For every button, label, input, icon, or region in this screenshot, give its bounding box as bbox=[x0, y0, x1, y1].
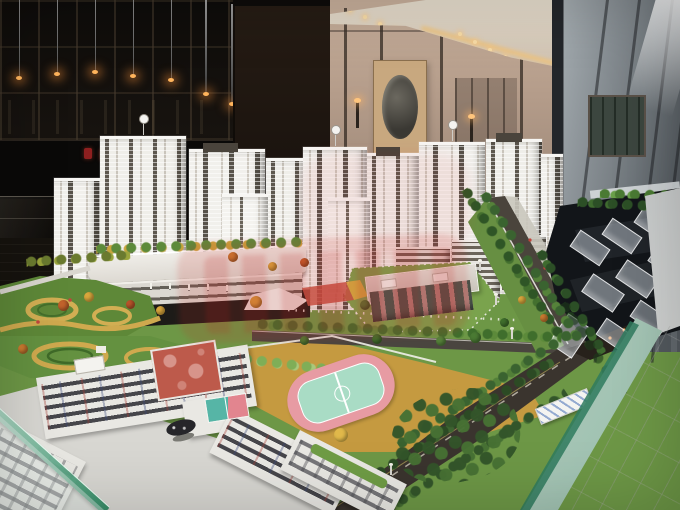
shelf-light bbox=[16, 76, 22, 80]
autumn-tree bbox=[156, 306, 165, 315]
tower-roof-sign-pin bbox=[452, 128, 453, 141]
flag-post bbox=[150, 283, 152, 289]
pendant-light bbox=[19, 0, 20, 76]
wall-sconce bbox=[356, 102, 359, 128]
street-lamp bbox=[511, 330, 513, 339]
autumn-tree bbox=[540, 314, 548, 322]
pendant-light bbox=[205, 0, 207, 92]
green-tree bbox=[436, 336, 446, 346]
tower-roof-sign-pin bbox=[143, 122, 144, 135]
shelf-light bbox=[168, 78, 174, 82]
autumn-tree bbox=[334, 428, 348, 442]
pendant-glow bbox=[203, 92, 209, 96]
downlight bbox=[458, 32, 462, 36]
shelf-light bbox=[92, 70, 98, 74]
round-artwork bbox=[382, 75, 418, 139]
sales-gallery-model-photo bbox=[0, 0, 680, 510]
pendant-light bbox=[57, 0, 58, 72]
pendant-light bbox=[171, 0, 172, 78]
tower-roof-sign-pin bbox=[335, 133, 336, 146]
pendant-light bbox=[133, 0, 134, 74]
rooftop-mechanical bbox=[496, 133, 522, 142]
reflected-door bbox=[588, 95, 646, 157]
shelf-light bbox=[130, 74, 136, 78]
red-watermark-text bbox=[204, 248, 457, 335]
wall-sconce bbox=[470, 118, 473, 144]
pendant-light bbox=[95, 0, 96, 70]
street-lamp bbox=[495, 296, 497, 305]
downlight bbox=[363, 15, 367, 19]
autumn-tree bbox=[84, 292, 94, 302]
flag-post bbox=[169, 283, 171, 289]
street-lamp bbox=[390, 466, 392, 475]
red-feature-wall bbox=[150, 340, 223, 402]
red-can bbox=[84, 148, 92, 159]
green-tree bbox=[500, 318, 509, 327]
autumn-tree bbox=[58, 300, 69, 311]
shelf-light bbox=[54, 72, 60, 76]
rooftop-box bbox=[74, 355, 106, 375]
green-tree bbox=[470, 332, 481, 343]
downlight bbox=[473, 40, 477, 44]
display-bottles bbox=[8, 100, 222, 134]
rooftop-mechanical bbox=[203, 143, 238, 152]
street-lamp bbox=[479, 262, 481, 271]
autumn-tree bbox=[126, 300, 135, 309]
autumn-tree bbox=[18, 344, 28, 354]
autumn-tree bbox=[518, 296, 526, 304]
